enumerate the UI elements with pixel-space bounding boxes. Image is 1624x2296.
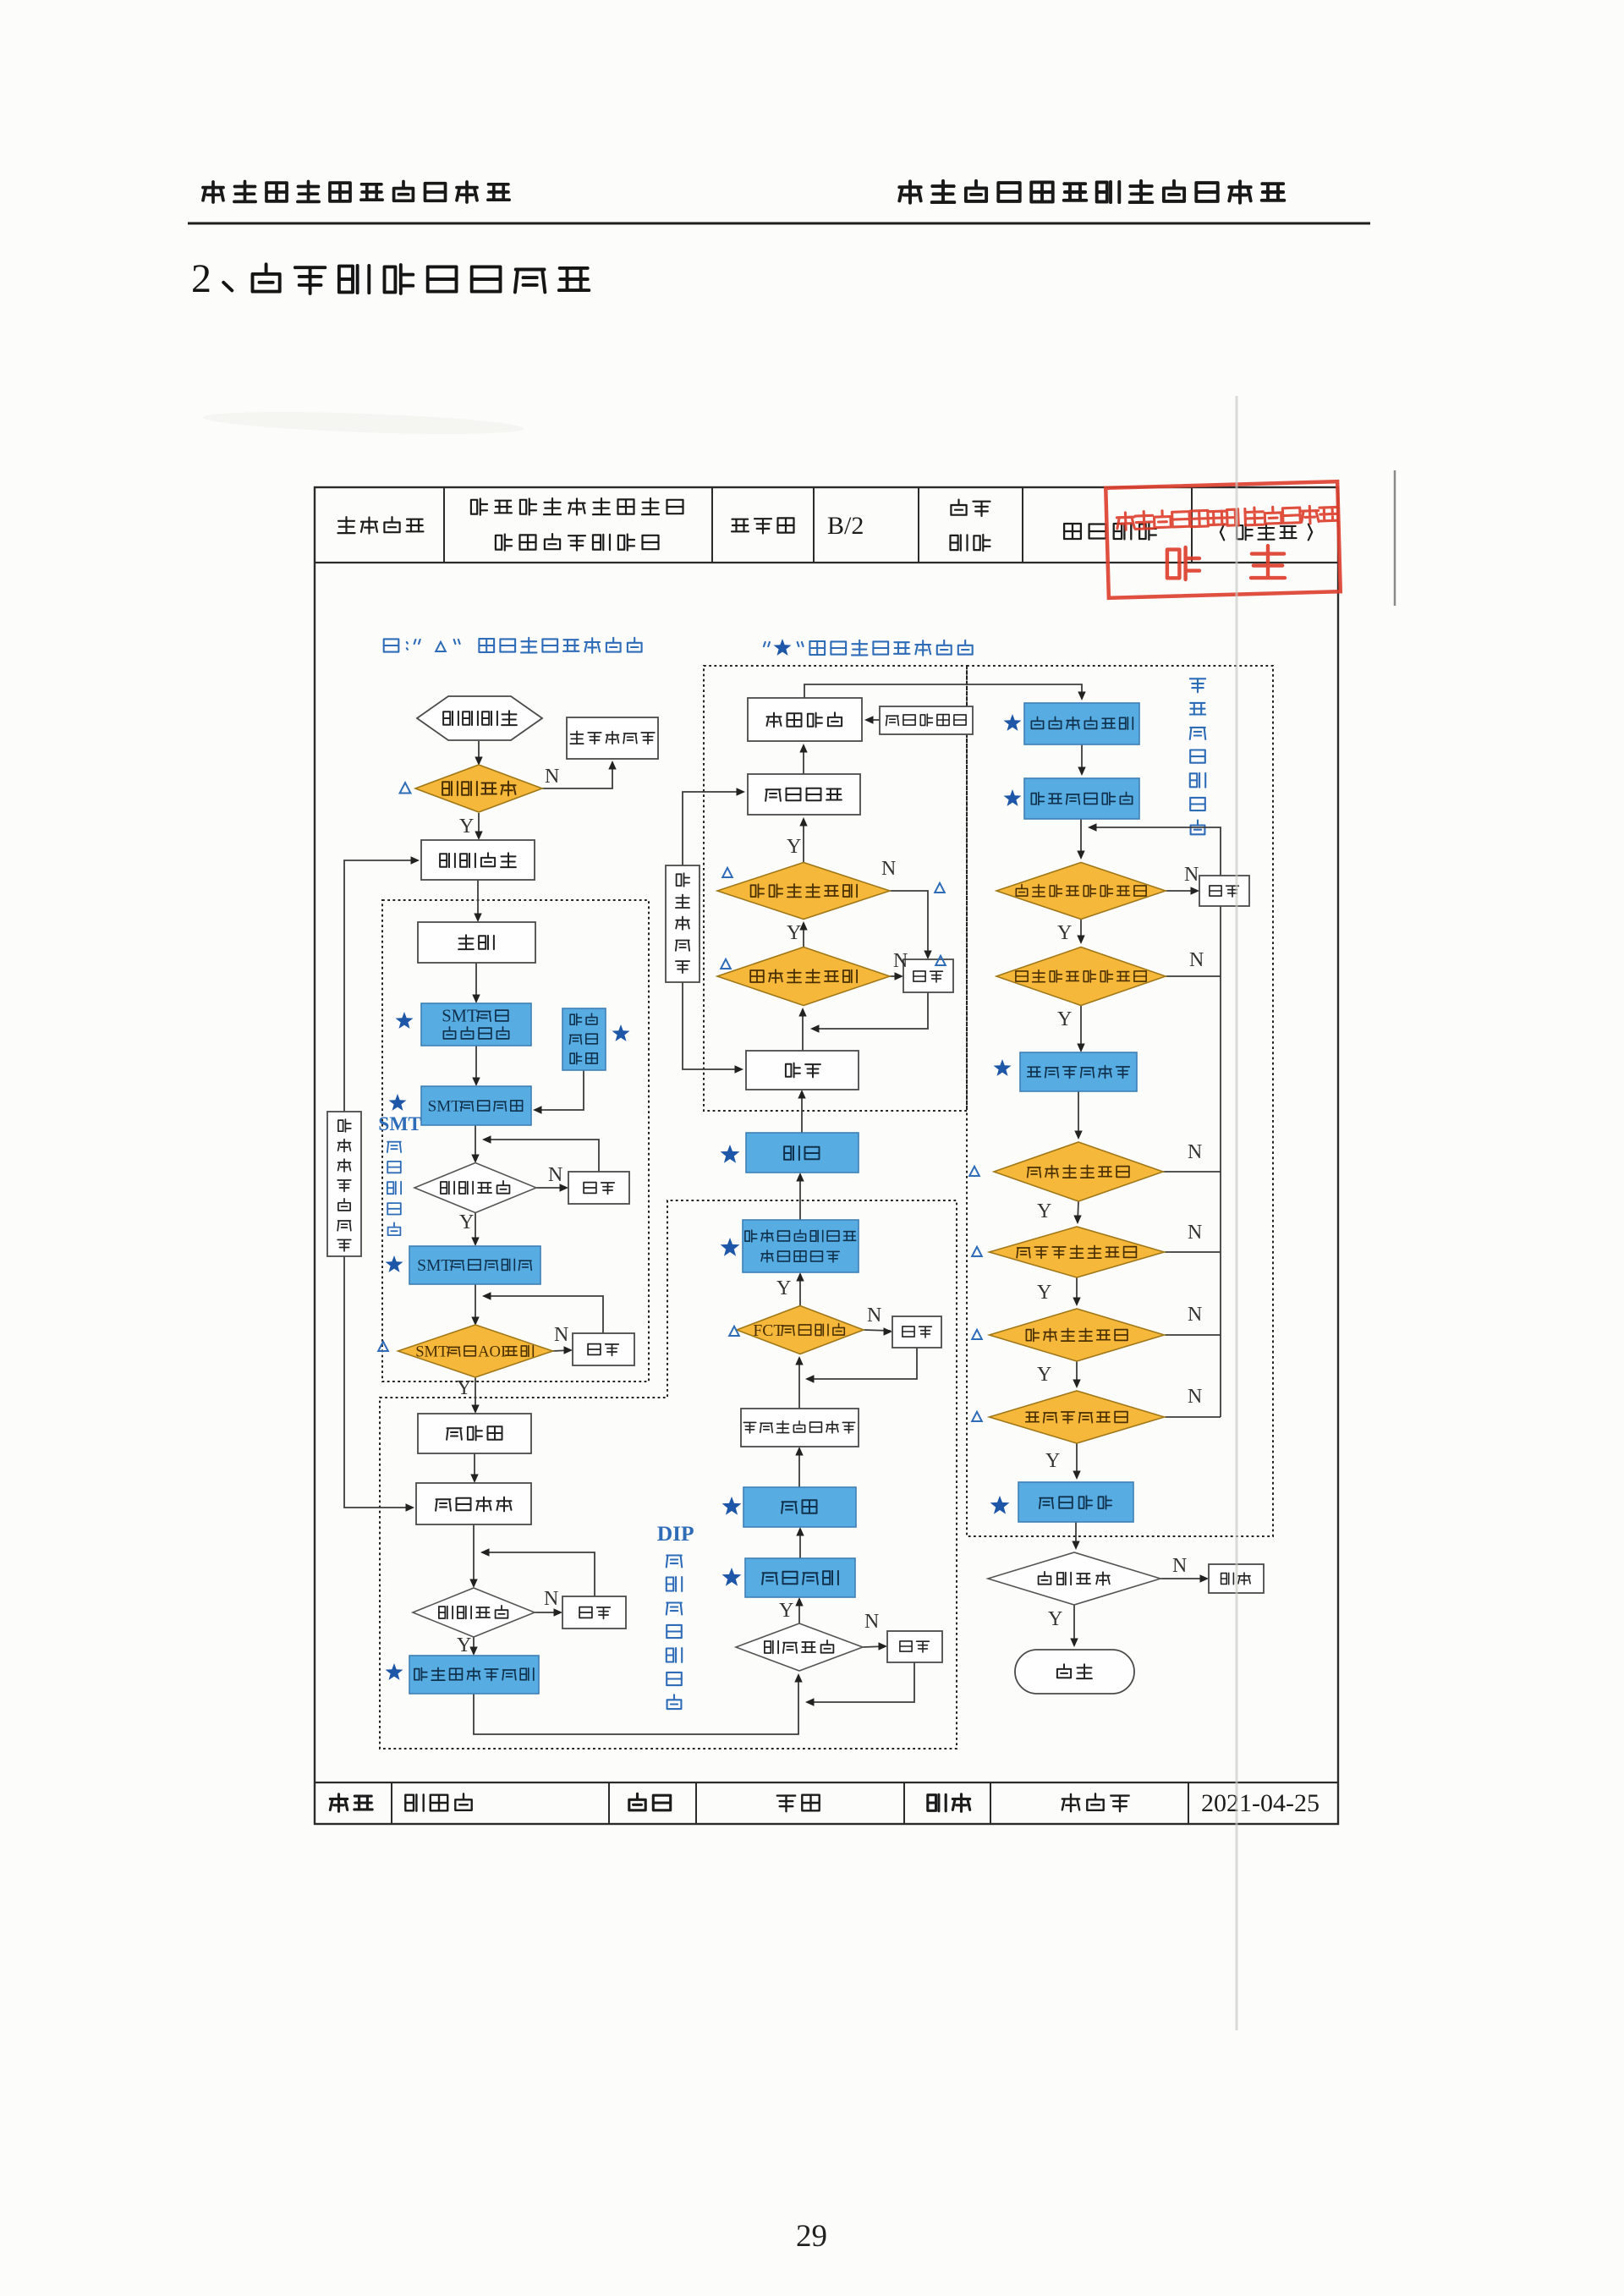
svg-text:Y: Y xyxy=(459,1211,474,1233)
svg-text:SMT: SMT xyxy=(378,1113,421,1135)
svg-text:FCT: FCT xyxy=(753,1322,783,1340)
svg-text:B/2: B/2 xyxy=(827,512,864,540)
svg-text:N: N xyxy=(867,1305,881,1327)
svg-text:Y: Y xyxy=(457,1377,471,1399)
svg-text:N: N xyxy=(554,1324,568,1346)
svg-text:Y: Y xyxy=(779,1600,793,1622)
svg-text:Y: Y xyxy=(787,836,801,858)
svg-text:Y: Y xyxy=(459,816,474,838)
svg-text:Y: Y xyxy=(1045,1450,1060,1472)
svg-text:DIP: DIP xyxy=(657,1521,694,1546)
svg-text:N: N xyxy=(1189,949,1204,971)
svg-text:N: N xyxy=(881,858,896,880)
svg-text:SMT-: SMT- xyxy=(428,1098,465,1116)
svg-text:2: 2 xyxy=(191,256,211,301)
svg-text:SMT-: SMT- xyxy=(415,1343,452,1361)
svg-text:2021-04-25: 2021-04-25 xyxy=(1201,1789,1319,1817)
svg-text:Y: Y xyxy=(1048,1608,1062,1630)
svg-text:SMT-: SMT- xyxy=(417,1257,455,1275)
svg-text:N: N xyxy=(893,950,908,972)
svg-text:Y: Y xyxy=(787,922,801,944)
svg-text:Y: Y xyxy=(1037,1364,1051,1386)
svg-text:29: 29 xyxy=(796,2219,827,2254)
svg-text:Y: Y xyxy=(1037,1200,1051,1222)
svg-text:N: N xyxy=(544,1588,558,1610)
svg-text:Y: Y xyxy=(1037,1282,1051,1304)
svg-text:N: N xyxy=(545,766,559,788)
svg-text:SMT-: SMT- xyxy=(442,1008,481,1026)
svg-text:N: N xyxy=(1188,1386,1202,1408)
svg-text:AOI: AOI xyxy=(478,1343,506,1361)
svg-text:Y: Y xyxy=(776,1277,791,1299)
svg-text:Y: Y xyxy=(1057,1008,1072,1030)
svg-text:N: N xyxy=(1184,864,1199,886)
svg-text:N: N xyxy=(548,1164,562,1186)
svg-text:Y: Y xyxy=(457,1634,471,1656)
svg-text:N: N xyxy=(1188,1304,1202,1326)
svg-text:N: N xyxy=(1172,1555,1187,1577)
svg-text:N: N xyxy=(864,1611,879,1633)
svg-text:Y: Y xyxy=(1057,922,1072,944)
svg-text:N: N xyxy=(1188,1141,1202,1163)
svg-text:N: N xyxy=(1188,1222,1202,1244)
